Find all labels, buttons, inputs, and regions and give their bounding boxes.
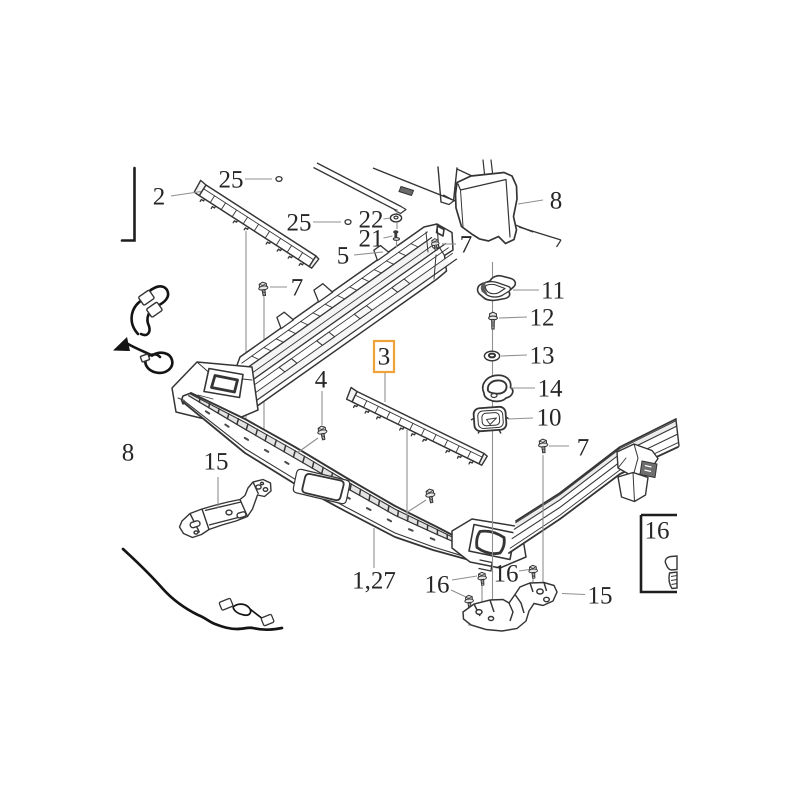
svg-text:25: 25 [287, 210, 312, 237]
svg-text:7: 7 [460, 232, 473, 259]
svg-text:7: 7 [577, 435, 590, 462]
svg-text:13: 13 [530, 343, 555, 370]
svg-text:1,27: 1,27 [352, 568, 396, 595]
svg-text:8: 8 [550, 188, 563, 215]
svg-text:5: 5 [337, 243, 350, 270]
svg-text:16: 16 [425, 572, 450, 599]
svg-text:4: 4 [315, 367, 328, 394]
svg-text:15: 15 [204, 449, 229, 476]
svg-text:16: 16 [494, 561, 519, 588]
svg-text:7: 7 [291, 275, 304, 302]
svg-text:15: 15 [588, 583, 613, 610]
svg-text:12: 12 [530, 305, 555, 332]
svg-text:2: 2 [153, 184, 166, 211]
svg-text:11: 11 [541, 278, 565, 305]
svg-text:14: 14 [538, 376, 564, 403]
svg-text:25: 25 [219, 167, 244, 194]
svg-text:8: 8 [122, 440, 135, 467]
svg-text:3: 3 [378, 344, 391, 371]
svg-text:16: 16 [645, 518, 670, 545]
svg-text:21: 21 [359, 226, 384, 253]
svg-text:10: 10 [537, 405, 562, 432]
